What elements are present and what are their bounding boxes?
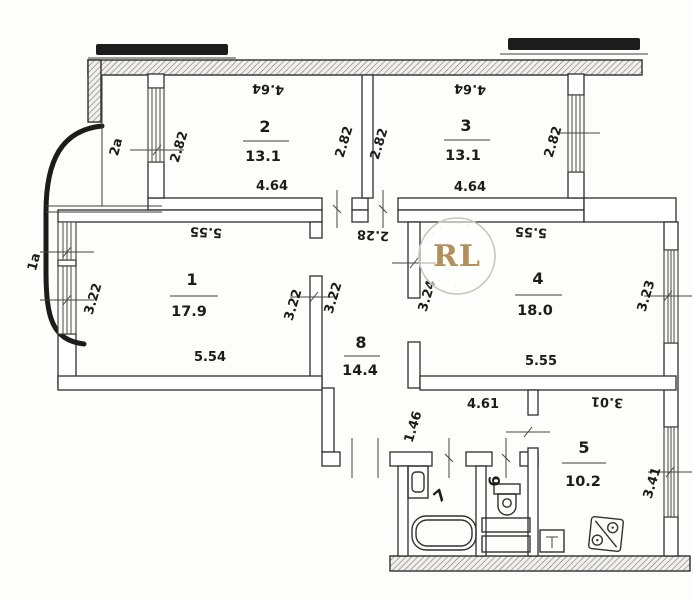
balcony1-label: 1а <box>25 252 44 273</box>
room6-number: 6 <box>485 475 504 486</box>
room5-number: 5 <box>578 438 589 457</box>
dim-room3-bottom: 4.64 <box>454 180 486 195</box>
dim-room3-top: 4.64 <box>454 80 487 97</box>
dim-room4-top: 5.55 <box>515 223 548 240</box>
dim-room2-right: 2.82 <box>333 124 357 159</box>
room7-number: 7 <box>430 485 451 507</box>
balcony2-label: 2а <box>107 137 126 158</box>
dim-room2-left: 2.82 <box>168 129 192 164</box>
window-room1-left-upper <box>58 222 76 260</box>
room2-area: 13.1 <box>245 149 281 165</box>
dim-room3-right: 2.82 <box>542 124 566 159</box>
dim-room2-bottom: 4.64 <box>256 179 288 194</box>
dim-room8-top: 2.28 <box>357 226 390 243</box>
dim-room4-bottom: 5.55 <box>525 354 557 369</box>
toilet <box>494 484 520 515</box>
room2-number: 2 <box>259 117 270 136</box>
room8-area: 14.4 <box>342 363 378 379</box>
dim-room1-top: 5.55 <box>190 223 223 240</box>
floor-plan-canvas: 2 13.1 3 13.1 1 17.9 4 18.0 8 14.4 5 10.… <box>0 0 694 600</box>
dim-room2-top: 4.64 <box>252 80 285 97</box>
dim-room5-right: 3.41 <box>641 465 665 500</box>
room3-area: 13.1 <box>445 148 481 164</box>
room4-number: 4 <box>532 269 543 288</box>
dim-room8-left: 3.22 <box>322 280 346 315</box>
room1-number: 1 <box>186 270 197 289</box>
dim-room1-bottom: 5.54 <box>194 350 226 365</box>
kitchen-sink-cabinet <box>540 530 564 552</box>
floor-plan-scan: 2 13.1 3 13.1 1 17.9 4 18.0 8 14.4 5 10.… <box>0 0 694 600</box>
dim-hall-width: 4.61 <box>467 397 499 412</box>
watermark: RL · · · · · · · · · · · <box>419 218 495 294</box>
watermark-initials: RL <box>433 239 481 274</box>
room8-number: 8 <box>355 333 366 352</box>
dim-room5-top: 3.01 <box>591 393 624 410</box>
balcony-railing-top-left <box>88 44 236 58</box>
room3-number: 3 <box>460 116 471 135</box>
bathtub <box>412 516 476 550</box>
stove-icon <box>588 516 623 551</box>
room-labels: 2 13.1 3 13.1 1 17.9 4 18.0 8 14.4 5 10.… <box>170 116 606 507</box>
storage-boxes <box>482 518 530 552</box>
bathroom-sink <box>408 466 428 498</box>
room5-area: 10.2 <box>565 474 601 490</box>
room1-area: 17.9 <box>171 304 207 320</box>
room4-area: 18.0 <box>517 303 553 319</box>
dim-room1-left: 3.22 <box>82 281 106 316</box>
dim-room1-right: 3.22 <box>282 287 306 322</box>
dim-hall-depth: 1.46 <box>402 409 426 444</box>
balcony-railing-top-right <box>500 38 648 54</box>
